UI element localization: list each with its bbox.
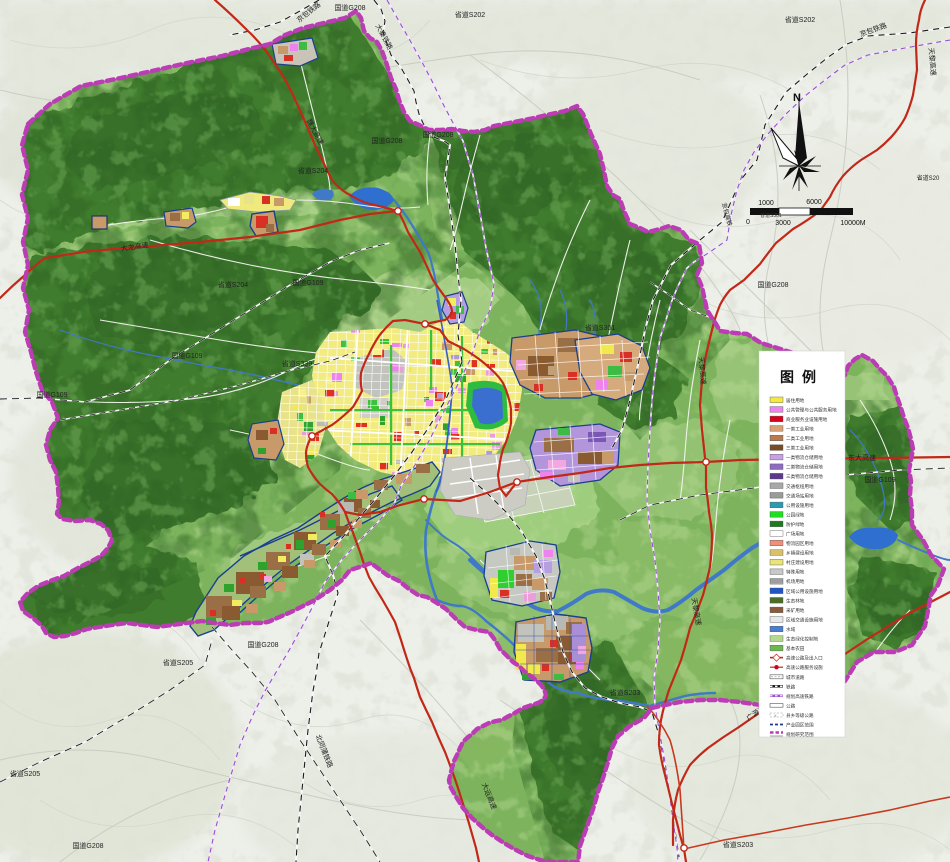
svg-text:高速公路服务设施: 高速公路服务设施 [786,664,823,671]
svg-text:村庄建设用地: 村庄建设用地 [786,559,814,566]
svg-text:公园绿地: 公园绿地 [786,511,805,518]
svg-text:公共管理与公共服务用地: 公共管理与公共服务用地 [786,406,837,413]
svg-text:物流园区用地: 物流园区用地 [786,540,814,547]
svg-text:省道S204: 省道S204 [298,166,328,175]
svg-text:居住用地: 居住用地 [786,397,805,404]
svg-text:交通场站用地: 交通场站用地 [786,492,814,499]
svg-text:省道S301: 省道S301 [760,212,782,219]
svg-text:N: N [793,92,801,104]
svg-text:水域: 水域 [786,626,796,632]
svg-text:三类物流仓储用地: 三类物流仓储用地 [786,473,823,480]
svg-text:区域公用设施用地: 区域公用设施用地 [786,588,823,595]
svg-text:规划研究范围: 规划研究范围 [786,731,814,738]
svg-text:三类工业用地: 三类工业用地 [786,445,814,452]
svg-text:铁路: 铁路 [786,683,796,690]
svg-text:省道S202: 省道S202 [455,10,485,19]
svg-text:乡镇建设用地: 乡镇建设用地 [786,550,814,557]
svg-text:X: X [774,713,777,718]
svg-text:采矿用地: 采矿用地 [786,607,805,614]
svg-text:国道G208: 国道G208 [371,136,402,145]
svg-text:国道G109: 国道G109 [36,390,67,399]
svg-text:省道S204: 省道S204 [218,280,248,289]
svg-text:省道S203: 省道S203 [723,840,753,849]
svg-text:国道G208: 国道G208 [247,640,278,649]
svg-text:国道G208: 国道G208 [757,280,788,289]
svg-text:省道S205: 省道S205 [163,658,193,667]
svg-text:商业服务业设施用地: 商业服务业设施用地 [786,416,828,423]
svg-text:东大高速: 东大高速 [848,453,876,462]
svg-text:城市道路: 城市道路 [786,674,805,681]
svg-text:基本农田: 基本农田 [786,645,805,652]
svg-text:6000: 6000 [806,199,822,206]
svg-text:省道S301: 省道S301 [585,323,615,332]
svg-text:一类工业用地: 一类工业用地 [786,425,814,432]
svg-text:县乡等级公路: 县乡等级公路 [786,712,814,719]
svg-text:生态林地: 生态林地 [786,597,805,604]
svg-text:公路: 公路 [786,702,796,709]
svg-text:省道S203: 省道S203 [610,688,640,697]
svg-text:产业园区范围: 产业园区范围 [786,722,814,729]
svg-text:国道G208: 国道G208 [334,3,365,12]
svg-text:省道S339: 省道S339 [282,359,312,368]
svg-text:广场用地: 广场用地 [786,531,805,538]
svg-text:一类物流仓储用地: 一类物流仓储用地 [786,454,823,461]
svg-text:1000: 1000 [758,200,774,207]
svg-text:省道S20: 省道S20 [917,174,940,182]
svg-text:省道S205: 省道S205 [10,769,40,778]
svg-text:交通枢纽用地: 交通枢纽用地 [786,483,814,490]
svg-text:图例: 图例 [780,369,824,385]
svg-text:3000: 3000 [775,220,791,227]
svg-text:二类物流仓储用地: 二类物流仓储用地 [786,464,823,471]
svg-text:国道G109: 国道G109 [171,351,202,360]
svg-text:高速公路及出入口: 高速公路及出入口 [786,655,823,662]
svg-text:国道G109: 国道G109 [864,475,895,484]
svg-text:二类工业用地: 二类工业用地 [786,435,814,442]
svg-text:生态绿化控制地: 生态绿化控制地 [786,636,819,643]
svg-text:公用设施用地: 公用设施用地 [786,502,814,509]
svg-text:国道G109: 国道G109 [292,278,323,287]
svg-text:机场用地: 机场用地 [786,578,805,585]
svg-text:特殊用地: 特殊用地 [786,569,805,576]
svg-text:国道G208: 国道G208 [422,130,453,139]
svg-text:省道S202: 省道S202 [785,15,815,24]
svg-text:0: 0 [746,219,750,226]
svg-text:规划高速铁路: 规划高速铁路 [786,693,814,700]
svg-text:防护绿地: 防护绿地 [786,521,805,528]
svg-text:区域交通设施用地: 区域交通设施用地 [786,616,823,623]
svg-text:10000M: 10000M [840,220,865,227]
svg-text:国道G208: 国道G208 [72,841,103,850]
